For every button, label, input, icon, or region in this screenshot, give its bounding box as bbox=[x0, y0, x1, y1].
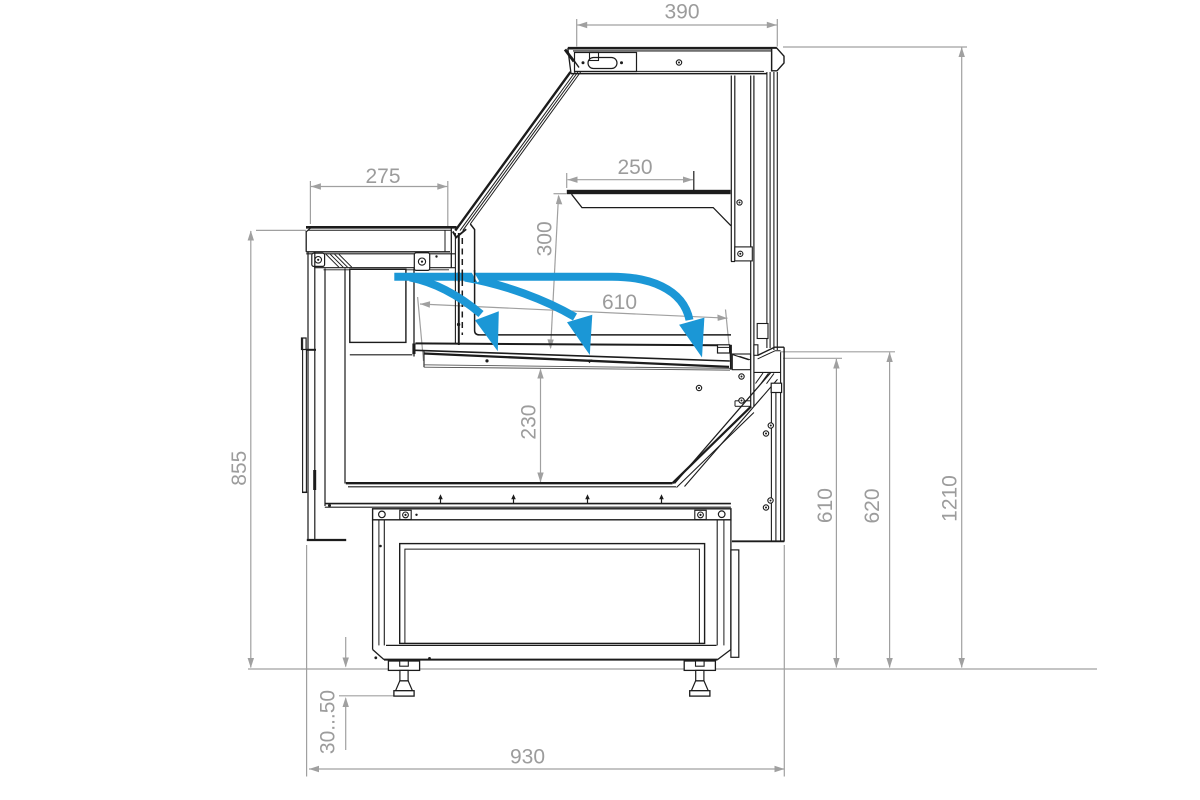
svg-text:610: 610 bbox=[602, 291, 637, 314]
svg-text:300: 300 bbox=[533, 221, 556, 256]
svg-text:620: 620 bbox=[861, 488, 884, 523]
svg-text:230: 230 bbox=[518, 405, 541, 440]
svg-text:610: 610 bbox=[814, 488, 837, 523]
svg-text:930: 930 bbox=[510, 745, 545, 768]
svg-text:1210: 1210 bbox=[938, 475, 961, 522]
svg-text:275: 275 bbox=[365, 165, 400, 188]
svg-text:390: 390 bbox=[664, 1, 699, 24]
svg-text:250: 250 bbox=[617, 156, 652, 179]
svg-text:855: 855 bbox=[228, 451, 251, 486]
svg-text:30...50: 30...50 bbox=[317, 690, 340, 754]
